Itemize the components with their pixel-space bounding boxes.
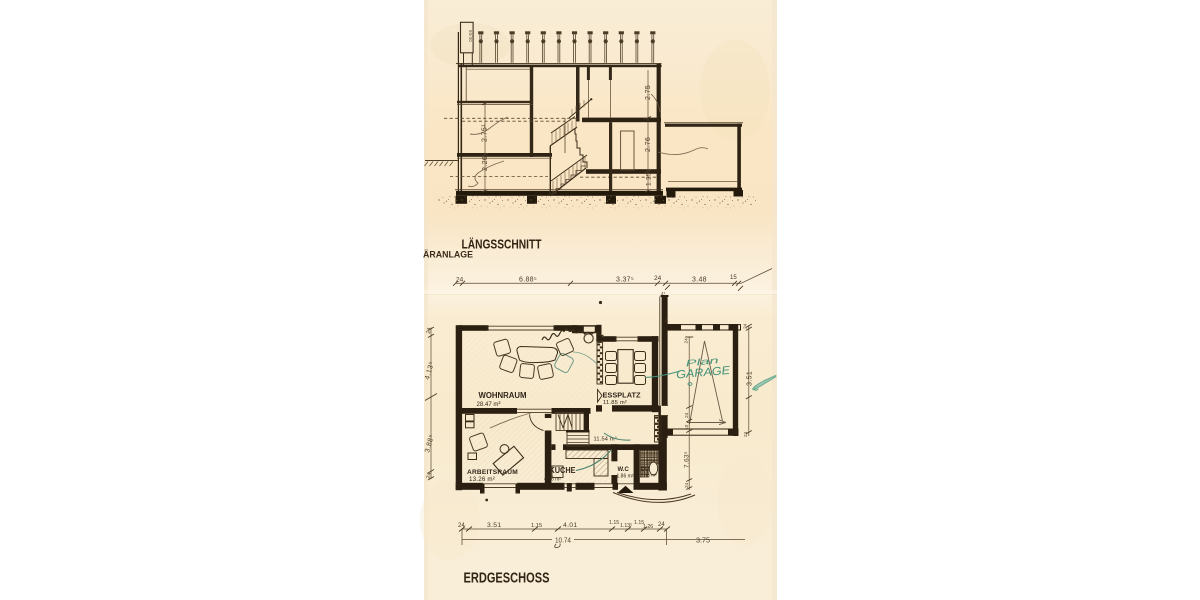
svg-text:1.26: 1.26 — [643, 524, 653, 530]
svg-text:50/30: 50/30 — [468, 30, 473, 42]
svg-text:DU: DU — [641, 467, 649, 473]
svg-text:ESSPLATZ: ESSPLATZ — [603, 391, 641, 400]
svg-text:2.06 m²: 2.06 m² — [641, 473, 658, 479]
svg-text:2.75: 2.75 — [645, 85, 652, 100]
svg-text:4.06 m²: 4.06 m² — [544, 477, 561, 483]
svg-text:W.C: W.C — [618, 467, 630, 473]
svg-text:3.37⁵: 3.37⁵ — [616, 277, 634, 284]
svg-text:2.76: 2.76 — [645, 137, 652, 152]
svg-text:ERDGESCHOSS: ERDGESCHOSS — [464, 571, 550, 587]
svg-text:3.75: 3.75 — [696, 536, 710, 545]
svg-text:1.15: 1.15 — [609, 520, 619, 526]
svg-text:2.: 2. — [665, 318, 669, 324]
svg-text:10: 10 — [684, 424, 690, 430]
svg-text:4.01: 4.01 — [563, 522, 577, 529]
svg-text:24: 24 — [743, 431, 749, 437]
svg-text:13.26 m²: 13.26 m² — [469, 476, 495, 483]
svg-text:ARBEITSRAUM: ARBEITSRAUM — [467, 469, 518, 476]
svg-text:3.51: 3.51 — [487, 522, 501, 529]
svg-text:1.13⁵: 1.13⁵ — [620, 523, 632, 529]
svg-text:3.51: 3.51 — [747, 371, 754, 386]
svg-text:1.86 m²: 1.86 m² — [617, 474, 634, 480]
svg-text:10.74: 10.74 — [555, 536, 571, 545]
svg-text:24: 24 — [684, 338, 690, 344]
svg-text:24: 24 — [654, 275, 662, 282]
svg-text:KÜCHE: KÜCHE — [550, 466, 577, 475]
svg-text:7.63⁵: 7.63⁵ — [684, 451, 691, 468]
svg-text:3.48: 3.48 — [692, 277, 707, 284]
svg-text:WOHNRAUM: WOHNRAUM — [479, 391, 527, 400]
svg-text:24: 24 — [684, 482, 690, 488]
svg-text:24: 24 — [743, 323, 749, 329]
svg-text:24: 24 — [658, 522, 665, 528]
svg-text:15: 15 — [730, 275, 737, 281]
svg-text:11.85 m²: 11.85 m² — [603, 400, 627, 406]
svg-text:ÄRANLAGE: ÄRANLAGE — [423, 250, 473, 260]
svg-text:24: 24 — [458, 523, 465, 529]
svg-text:6.88⁵: 6.88⁵ — [519, 277, 537, 284]
svg-text:1.15: 1.15 — [531, 523, 542, 529]
svg-text:24: 24 — [684, 412, 690, 418]
svg-text:LÄNGSSCHNITT: LÄNGSSCHNITT — [462, 237, 542, 252]
svg-text:1.25: 1.25 — [646, 172, 653, 186]
svg-text:28.47 m²: 28.47 m² — [477, 401, 502, 408]
svg-text:24: 24 — [456, 277, 464, 284]
